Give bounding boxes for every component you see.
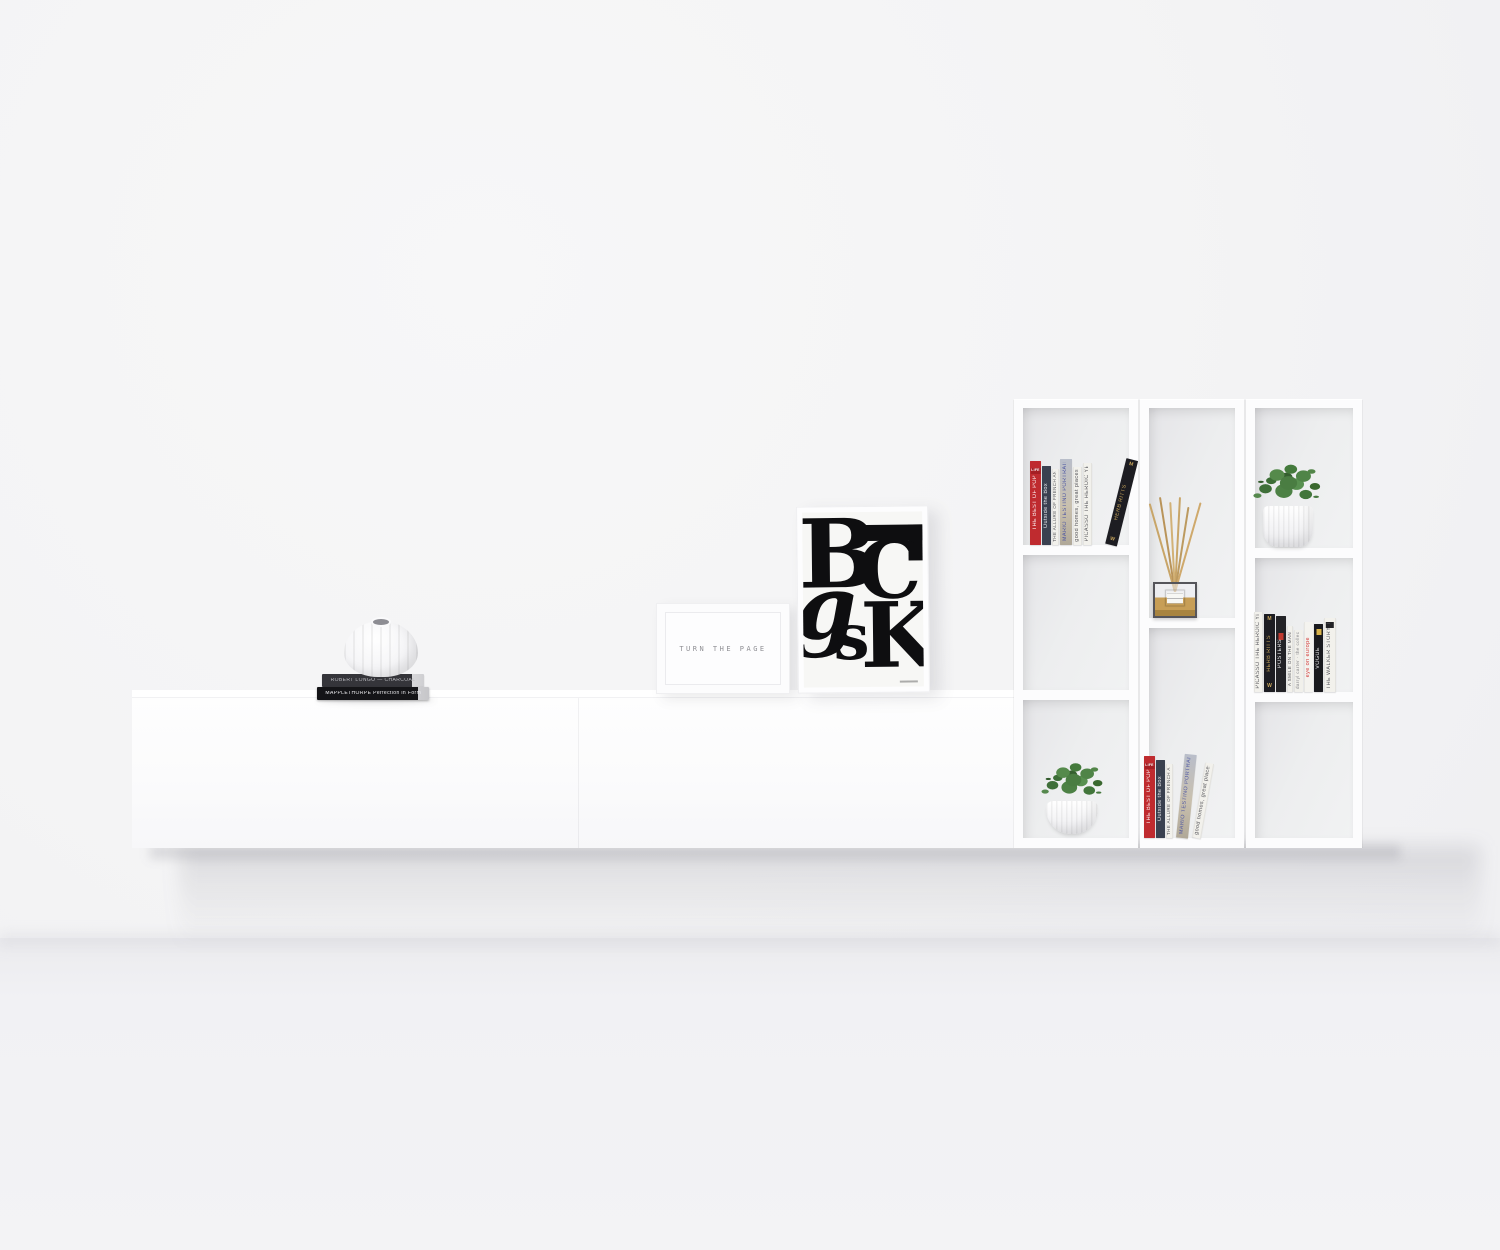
- diffuser-label: [1165, 590, 1185, 607]
- book-title: eye on europe: [1306, 637, 1312, 677]
- book-spine: POSTERS: [1276, 616, 1286, 692]
- shelf-cell-right-bottom: [1255, 702, 1353, 838]
- stacked-book-title: MAPPLETHORPE Perfection in Form: [325, 691, 420, 696]
- book-title: good homes, great places: [1194, 766, 1212, 836]
- book-spine: eye on europe: [1304, 622, 1313, 692]
- shelf-books-right-middle: PICASSO THE HEROIC YEARS M HERB RITTS W …: [1254, 610, 1352, 692]
- typography-poster: B C g s K: [796, 505, 930, 693]
- book-title: MARIO TESTINO PORTRAITS: [1180, 758, 1194, 835]
- book-title: THE ALLURE OF FRENCH AND ITALIAN DECOR: [1053, 472, 1058, 542]
- book-gold-emblem: [1316, 629, 1321, 635]
- book-spine: darryl carter · the collected home: [1294, 630, 1303, 692]
- sideboard-door-seam: [578, 698, 579, 848]
- shelf-books-left-top: LIFE THE BEST OF POP Outside the Box THE…: [1030, 457, 1134, 545]
- round-ribbed-vase: [344, 621, 418, 677]
- furniture-soft-shadow: [180, 846, 1480, 948]
- book-spine: THE ALLURE OF FRENCH AND ITALIAN DECOR: [1052, 469, 1059, 545]
- framed-print-text: TURN THE PAGE: [679, 645, 766, 653]
- book-spine: VOGUE: [1314, 624, 1323, 692]
- stacked-book-title: ROBERT LONGO — CHARCOAL: [331, 678, 416, 683]
- book-title: HERB RITTS: [1115, 484, 1129, 521]
- reed-diffuser: [1152, 496, 1200, 620]
- book-spine: M HERB RITTS W: [1105, 458, 1138, 546]
- book-title: VOGUE: [1316, 647, 1322, 669]
- book-badge-top: M: [1267, 617, 1271, 622]
- book-title: THE WALKER STORY THEATER: [1327, 621, 1333, 689]
- poster-artwork: B C g s K: [802, 511, 924, 687]
- book-title: THE ALLURE OF FRENCH AND ITALIAN DECOR: [1167, 767, 1172, 835]
- book-title: PICASSO THE HEROIC YEARS: [1256, 615, 1262, 689]
- framed-print: TURN THE PAGE: [656, 603, 790, 694]
- plant-foliage: [1066, 774, 1082, 787]
- book-title: MARIO TESTINO PORTRAITS: [1063, 462, 1069, 541]
- life-logo-badge: LIFE: [1144, 763, 1154, 769]
- book-title: darryl carter · the collected home: [1296, 632, 1301, 689]
- book-spine: PICASSO THE HEROIC YEARS: [1254, 612, 1263, 692]
- poster-signature: [900, 680, 918, 682]
- room-scene: ROBERT LONGO — CHARCOAL MAPPLETHORPE Per…: [0, 0, 1500, 1250]
- book-title: Outside the Box: [1044, 483, 1050, 528]
- book-title: good homes, great places: [1075, 470, 1081, 542]
- book-spine: MARIO TESTINO PORTRAITS: [1060, 459, 1072, 545]
- shelf-cell-left-middle: [1023, 555, 1129, 690]
- poster-letter-k: K: [860, 603, 924, 669]
- book-badge-bottom: W: [1109, 537, 1115, 543]
- book-spine: Outside the Box: [1042, 466, 1051, 545]
- plant-pot-ribbed: [1263, 506, 1313, 547]
- book-title: HERB RITTS: [1267, 635, 1273, 672]
- stacked-book: MAPPLETHORPE Perfection in Form: [317, 687, 429, 700]
- book-title: Outside the Box: [1158, 776, 1164, 821]
- book-title: POSTERS: [1278, 639, 1284, 668]
- book-spine: Outside the Box: [1156, 760, 1165, 838]
- book-title: THE BEST OF POP: [1033, 475, 1039, 530]
- book-badge-top: M: [1128, 462, 1133, 468]
- book-spine: good homes, great places: [1073, 467, 1082, 545]
- book-title: A SMILE ON THE MAN: [1288, 632, 1293, 686]
- book-title: PICASSO THE HEROIC YEARS: [1085, 466, 1091, 541]
- plant-foliage: [1280, 476, 1297, 490]
- floating-sideboard: [132, 690, 1028, 848]
- diffuser-glass-cube: [1153, 582, 1197, 618]
- book-spine: LIFE THE BEST OF POP: [1144, 756, 1155, 838]
- vase-mouth: [373, 619, 389, 625]
- book-title: THE BEST OF POP: [1147, 769, 1153, 824]
- book-spine: A SMILE ON THE MAN: [1287, 626, 1293, 692]
- book-spine: M HERB RITTS W: [1264, 614, 1275, 692]
- book-spine: LIFE THE BEST OF POP: [1030, 461, 1041, 545]
- floor: [0, 938, 1500, 1250]
- book-spine: PICASSO THE HEROIC YEARS: [1083, 463, 1092, 545]
- book-badge-bottom: W: [1267, 684, 1272, 689]
- book-spine: THE ALLURE OF FRENCH AND ITALIAN DECOR: [1166, 764, 1173, 838]
- book-spine: THE WALKER STORY THEATER: [1324, 618, 1336, 692]
- life-logo-badge: LIFE: [1030, 468, 1040, 474]
- shelf-books-middle-bottom: LIFE THE BEST OF POP Outside the Box THE…: [1144, 750, 1236, 838]
- book-spine: good homes, great places: [1192, 762, 1214, 838]
